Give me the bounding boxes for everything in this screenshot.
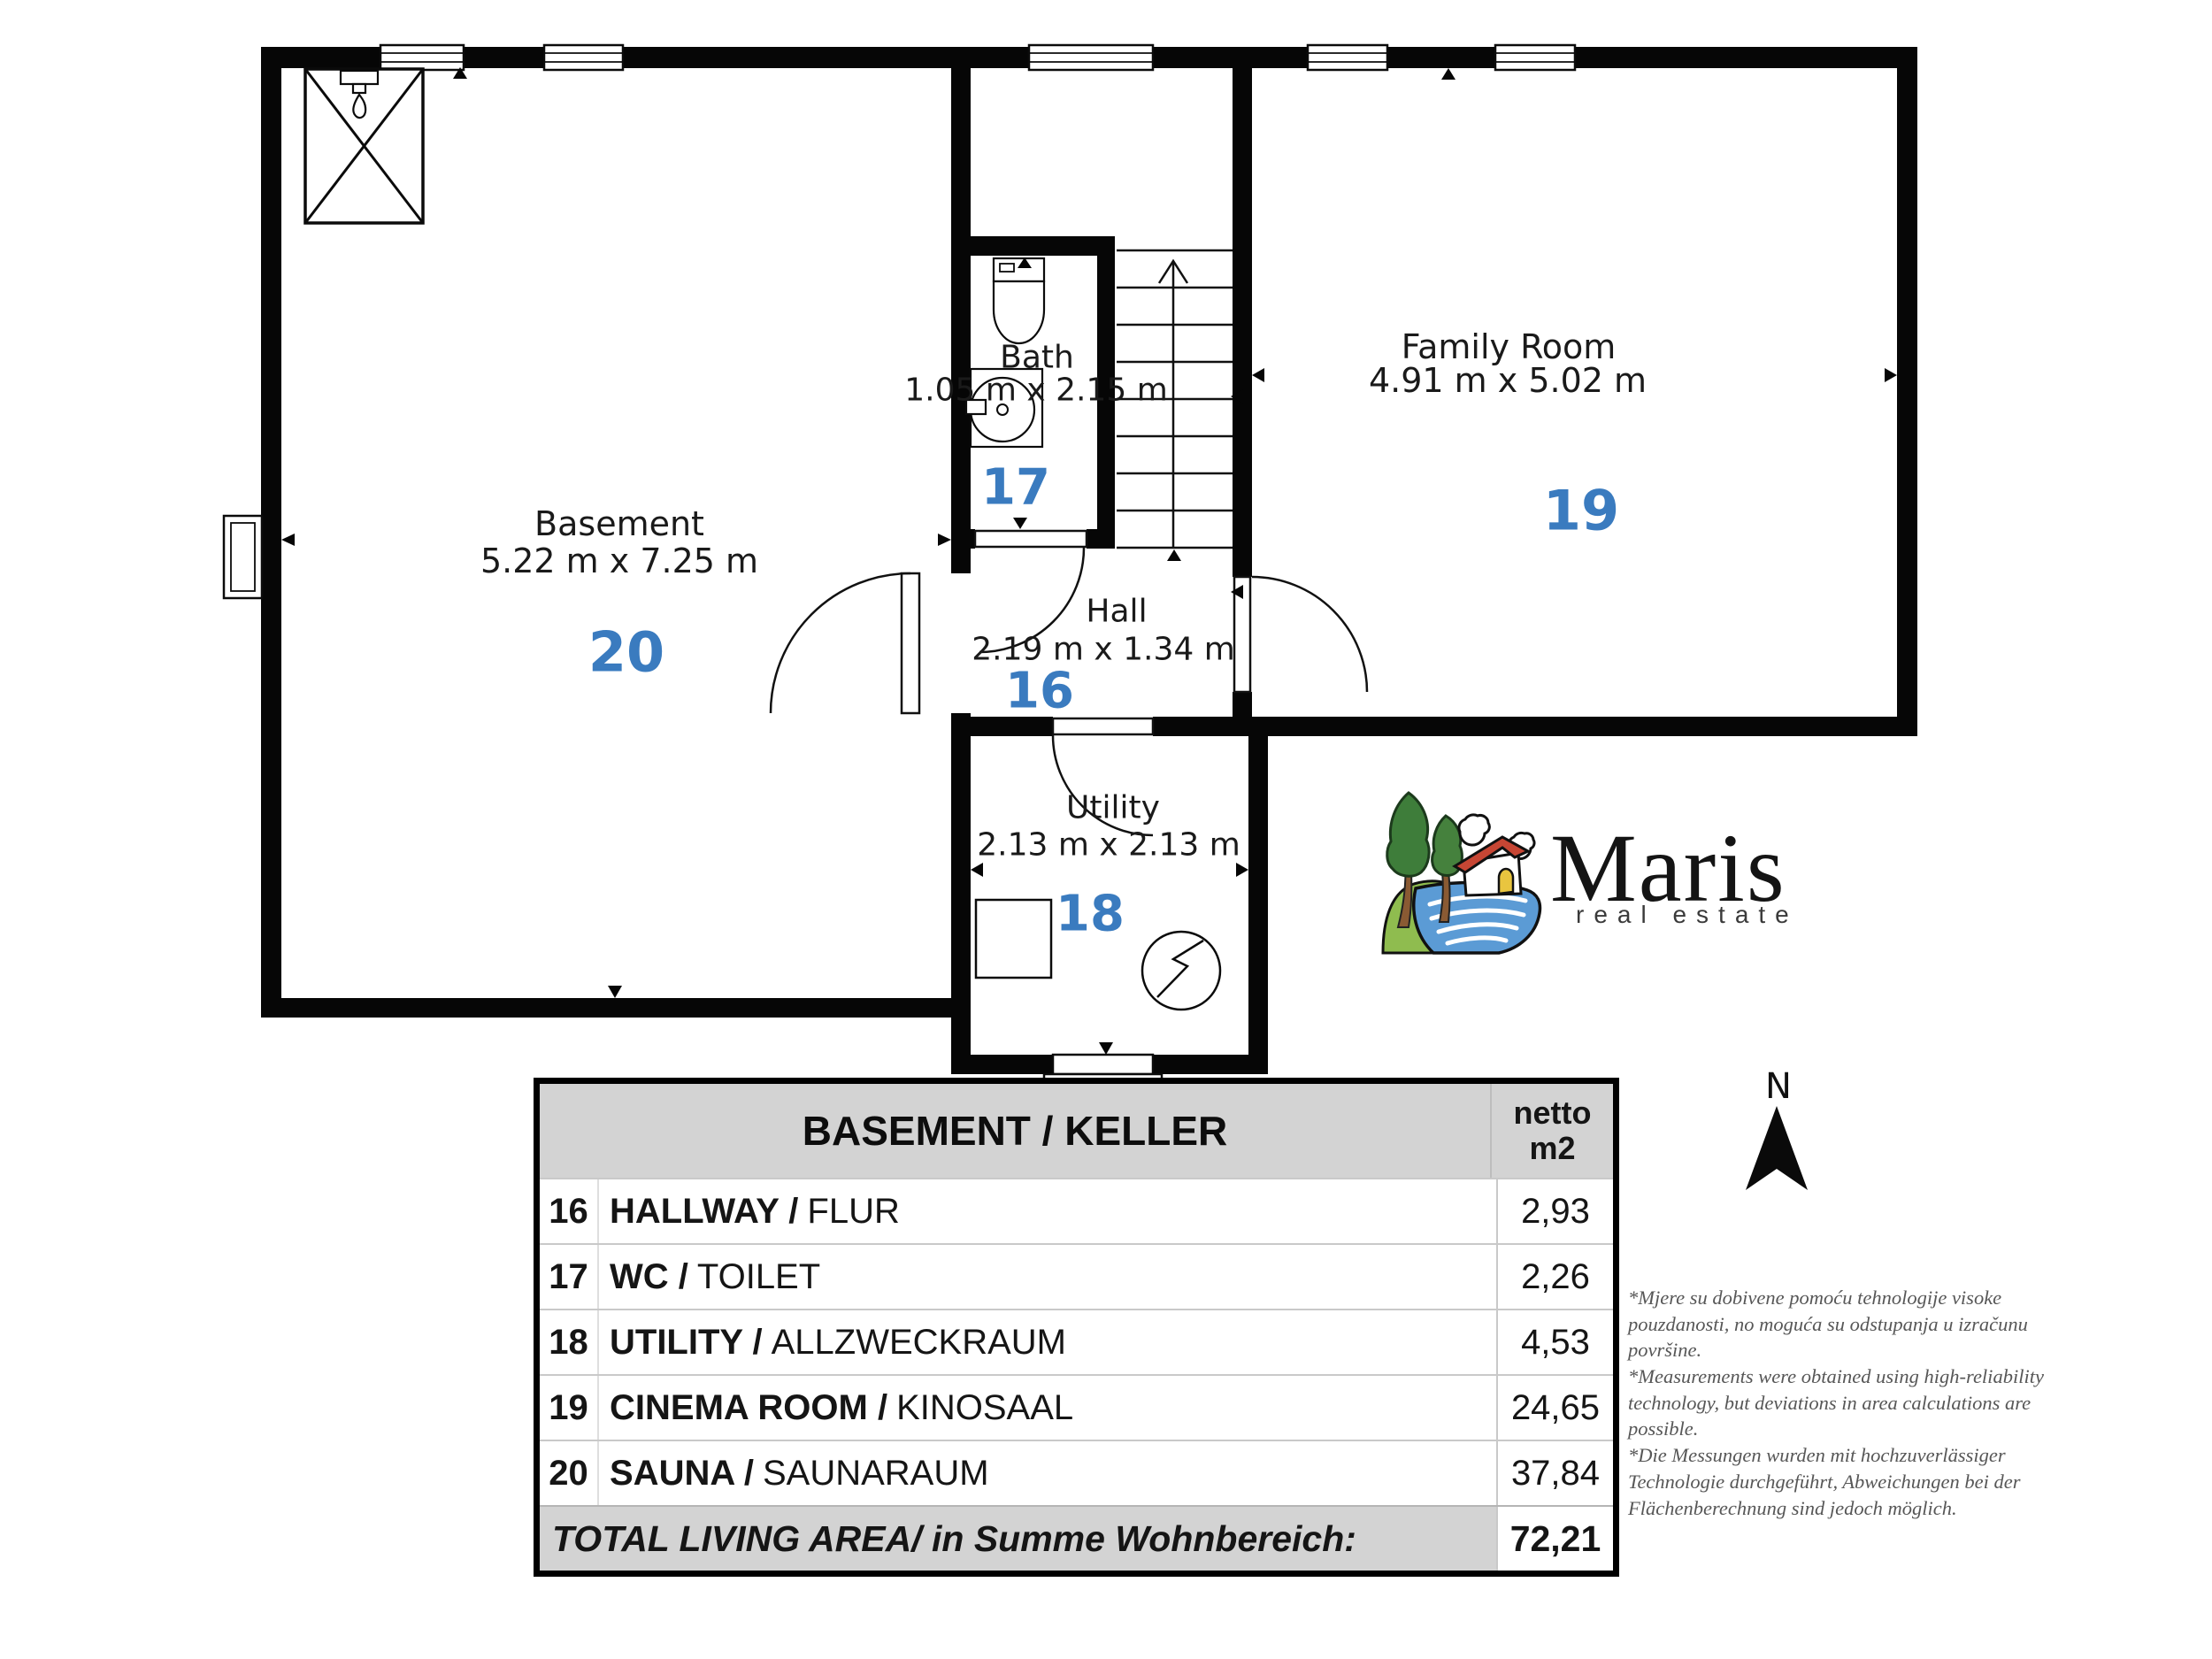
room-name-de: SAUNARAUM (763, 1454, 989, 1494)
logo-house (1455, 837, 1528, 895)
room-name-en: HALLWAY / (610, 1192, 798, 1232)
compass-label: N (1765, 1066, 1792, 1107)
disclaimer-line: Technologie durchgeführt, Abweichungen b… (1628, 1469, 2141, 1495)
logo-tagline-text: real estate (1576, 901, 1799, 929)
family-room-dimensions: 4.91 m x 5.02 m (1369, 361, 1647, 400)
disclaimer-line: possible. (1628, 1416, 2141, 1442)
disclaimer-line: pouzdanosti, no moguća su odstupanja u i… (1628, 1311, 2141, 1338)
room-name-de: ALLZWECKRAUM (772, 1323, 1066, 1363)
room-name-cell: SAUNA / SAUNARAUM (597, 1441, 1496, 1505)
basement-number: 20 (588, 620, 664, 685)
disclaimer-line: *Measurements were obtained using high-r… (1628, 1363, 2141, 1390)
table-unit-header: netto m2 (1490, 1084, 1613, 1178)
room-name-en: UTILITY / (610, 1323, 763, 1363)
room-index: 16 (540, 1179, 597, 1243)
room-name-de: FLUR (807, 1192, 899, 1232)
room-name-cell: UTILITY / ALLZWECKRAUM (597, 1310, 1496, 1374)
table-row: 19 CINEMA ROOM / KINOSAAL 24,65 (540, 1374, 1613, 1440)
table-row: 16 HALLWAY / FLUR 2,93 (540, 1178, 1613, 1243)
room-index: 19 (540, 1376, 597, 1440)
room-name-cell: CINEMA ROOM / KINOSAAL (597, 1376, 1496, 1440)
hall-number: 16 (1005, 663, 1074, 720)
area-table: BASEMENT / KELLER netto m2 16 HALLWAY / … (534, 1078, 1619, 1577)
disclaimer-line: technology, but deviations in area calcu… (1628, 1390, 2141, 1417)
table-row: 18 UTILITY / ALLZWECKRAUM 4,53 (540, 1309, 1613, 1374)
room-area-value: 2,93 (1496, 1179, 1613, 1243)
disclaimer-line: površine. (1628, 1337, 2141, 1363)
toilet-icon (994, 258, 1044, 343)
disclaimer-text: *Mjere su dobivene pomoću tehnologije vi… (1628, 1285, 2141, 1521)
left-wall-window (224, 516, 262, 598)
table-row: 17 WC / TOILET 2,26 (540, 1243, 1613, 1309)
unit-line2: m2 (1529, 1131, 1575, 1166)
room-name-en: SAUNA / (610, 1454, 754, 1494)
room-area-value: 37,84 (1496, 1441, 1613, 1505)
room-name-en: CINEMA ROOM / (610, 1388, 887, 1428)
table-total-row: TOTAL LIVING AREA/ in Summe Wohnbereich:… (540, 1505, 1613, 1571)
room-name-de: TOILET (697, 1257, 820, 1297)
room-index: 17 (540, 1245, 597, 1309)
basement-label: Basement (534, 504, 704, 543)
room-name-cell: HALLWAY / FLUR (597, 1179, 1496, 1243)
table-title: BASEMENT / KELLER (540, 1084, 1490, 1178)
utility-dimensions: 2.13 m x 2.13 m (977, 827, 1240, 864)
disclaimer-line: *Mjere su dobivene pomoću tehnologije vi… (1628, 1285, 2141, 1311)
utility-number: 18 (1056, 886, 1125, 943)
basement-dimensions: 5.22 m x 7.25 m (480, 541, 758, 580)
appliance-icon (976, 900, 1051, 978)
bath-label: Bath (1000, 340, 1074, 376)
room-name-en: WC / (610, 1257, 688, 1297)
disclaimer-line: *Die Messungen wurden mit hochzuverlässi… (1628, 1442, 2141, 1469)
room-area-value: 24,65 (1496, 1376, 1613, 1440)
total-value: 72,21 (1496, 1507, 1613, 1571)
room-area-value: 4,53 (1496, 1310, 1613, 1374)
total-label: TOTAL LIVING AREA/ in Summe Wohnbereich: (540, 1507, 1496, 1571)
room-name-cell: WC / TOILET (597, 1245, 1496, 1309)
room-area-value: 2,26 (1496, 1245, 1613, 1309)
table-row: 20 SAUNA / SAUNARAUM 37,84 (540, 1440, 1613, 1505)
logo-mark (1383, 793, 1540, 953)
room-index: 18 (540, 1310, 597, 1374)
bath-dimensions: 1.05 m x 2.15 m (904, 373, 1168, 409)
room-index: 20 (540, 1441, 597, 1505)
family-room-number: 19 (1543, 479, 1619, 543)
utility-label: Utility (1066, 790, 1160, 826)
room-name-de: KINOSAAL (896, 1388, 1073, 1428)
screenshot-root: Basement 5.22 m x 7.25 m 20 Bath 1.05 m … (0, 0, 2212, 1659)
water-heater-icon (1142, 932, 1220, 1010)
disclaimer-line: Flächenberechnung sind jedoch möglich. (1628, 1495, 2141, 1522)
bath-number: 17 (981, 459, 1050, 517)
table-header: BASEMENT / KELLER netto m2 (540, 1084, 1613, 1178)
unit-line1: netto (1514, 1095, 1592, 1131)
north-arrow-icon (1746, 1106, 1808, 1190)
hall-label: Hall (1086, 594, 1147, 630)
